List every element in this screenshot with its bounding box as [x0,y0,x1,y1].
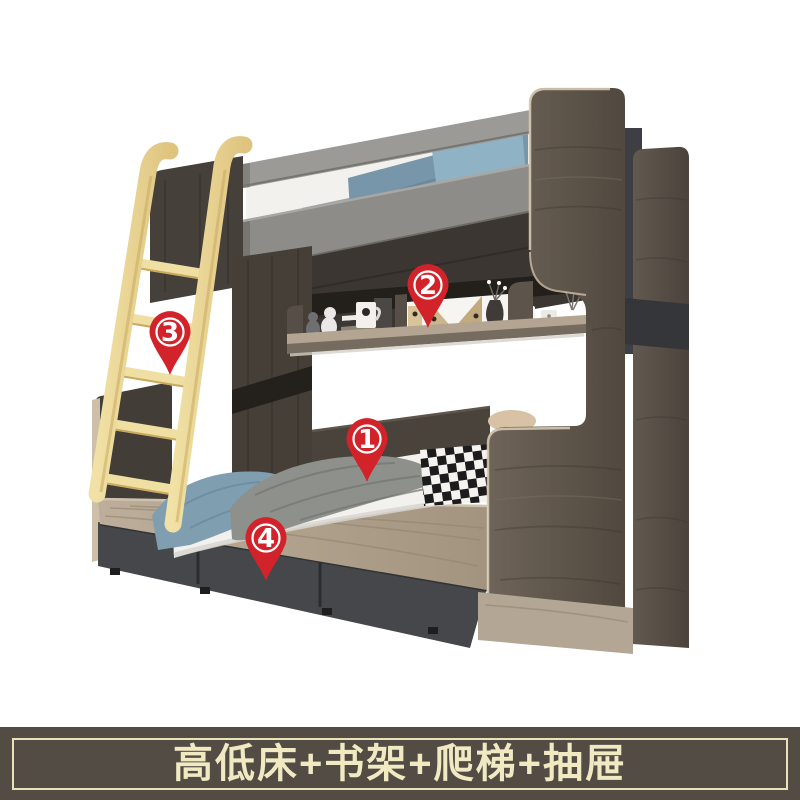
bunk-bed-illustration: 1234 [0,0,800,800]
rear-panel-accent-band [625,298,689,350]
lower-bed [92,383,536,648]
checkered-pillow [420,444,490,506]
callout-pin-ladder: 3 [150,311,191,375]
callout-number: 4 [257,524,275,554]
product-image: 1234 高低床+书架+爬梯+抽屉 [0,0,800,800]
caption-banner: 高低床+书架+爬梯+抽屉 [0,727,800,800]
caption-border: 高低床+书架+爬梯+抽屉 [12,738,788,790]
caption-text: 高低床+书架+爬梯+抽屉 [173,744,627,784]
callout-number: 1 [358,425,376,455]
callout-number: 3 [161,318,179,348]
upper-headboard [150,156,243,303]
right-rear-panel [618,128,689,648]
callout-number: 2 [419,271,437,301]
